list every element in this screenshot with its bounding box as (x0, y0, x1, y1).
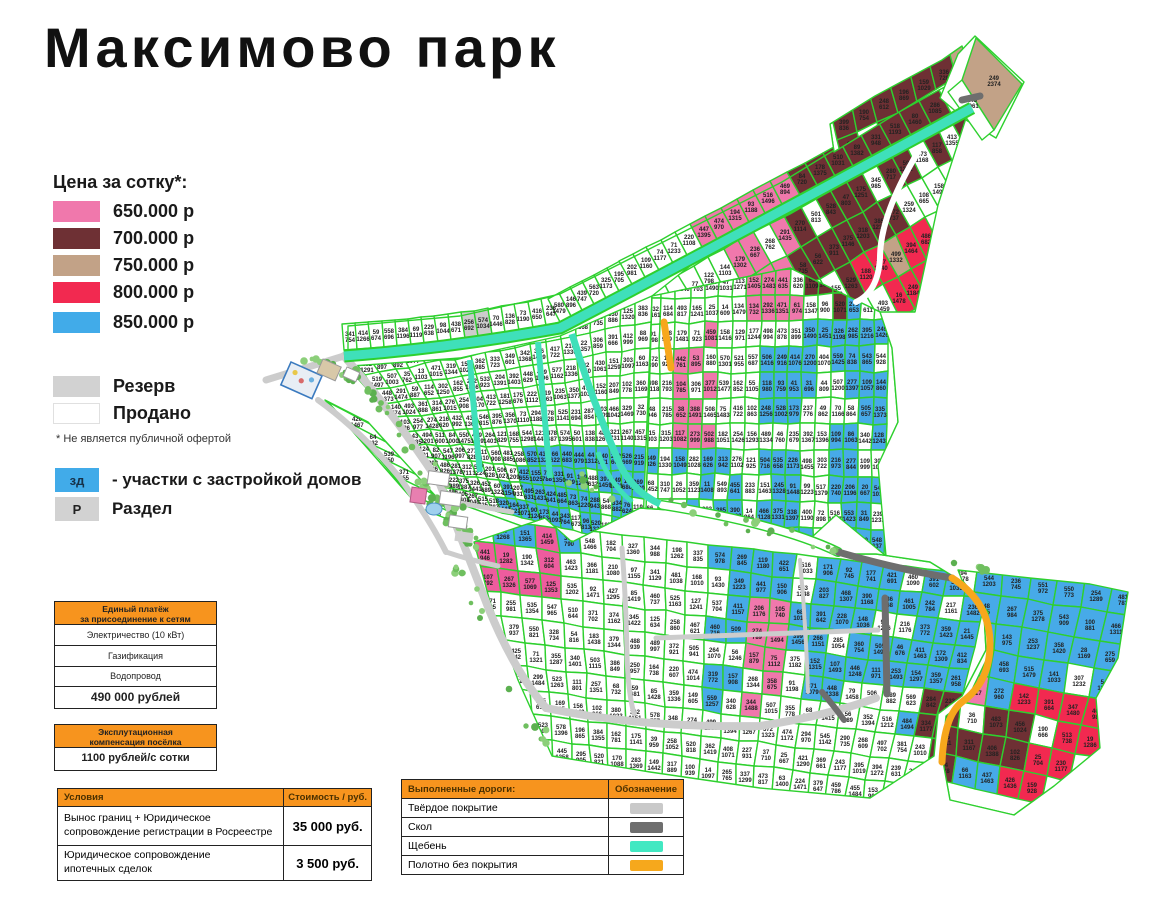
svg-text:104785: 104785 (676, 382, 687, 394)
svg-text:416722: 416722 (733, 406, 744, 418)
svg-text:379647: 379647 (813, 781, 824, 793)
svg-text:347760: 347760 (516, 697, 527, 709)
svg-text:109994: 109994 (831, 432, 842, 444)
svg-text:4351228: 4351228 (495, 694, 509, 706)
svg-text:162781: 162781 (611, 732, 622, 744)
svg-text:190754: 190754 (859, 110, 870, 122)
svg-text:441977: 441977 (756, 582, 767, 594)
svg-text:439747: 439747 (577, 291, 588, 303)
svg-text:424641: 424641 (546, 492, 557, 504)
svg-text:117858: 117858 (932, 143, 943, 155)
svg-text:216973: 216973 (831, 458, 842, 470)
svg-text:195705: 195705 (614, 272, 625, 284)
svg-text:203827: 203827 (819, 588, 830, 600)
svg-text:379937: 379937 (509, 625, 520, 637)
svg-text:473878: 473878 (777, 329, 788, 341)
svg-text:361888: 361888 (418, 402, 429, 414)
svg-text:215919: 215919 (634, 455, 645, 467)
svg-text:129971: 129971 (735, 330, 746, 342)
svg-text:485664: 485664 (557, 493, 568, 505)
svg-text:510644: 510644 (568, 608, 579, 620)
svg-text:351899: 351899 (791, 329, 802, 341)
svg-text:173979: 173979 (789, 406, 800, 418)
svg-text:574978: 574978 (715, 553, 726, 565)
svg-text:372921: 372921 (669, 644, 680, 656)
svg-text:421691: 421691 (887, 573, 898, 585)
svg-text:441635: 441635 (778, 278, 789, 290)
svg-text:239631: 239631 (891, 766, 902, 778)
svg-text:255981: 255981 (506, 601, 517, 613)
svg-text:488939: 488939 (630, 639, 641, 651)
svg-text:175953: 175953 (999, 232, 1010, 244)
svg-text:49726: 49726 (982, 199, 993, 211)
svg-text:417722: 417722 (550, 347, 561, 359)
svg-text:236745: 236745 (1011, 579, 1022, 591)
svg-text:454847: 454847 (503, 743, 514, 755)
svg-text:381754: 381754 (897, 742, 908, 754)
svg-text:100939: 100939 (685, 765, 696, 777)
svg-text:248612: 248612 (879, 99, 890, 111)
svg-text:196865: 196865 (575, 728, 586, 740)
svg-text:43627: 43627 (969, 249, 980, 261)
svg-text:105740: 105740 (775, 607, 786, 619)
svg-text:171906: 171906 (823, 565, 834, 577)
svg-text:134732: 134732 (749, 304, 760, 316)
svg-text:550773: 550773 (1064, 587, 1075, 599)
svg-text:149605: 149605 (688, 693, 699, 705)
svg-text:511600: 511600 (435, 433, 446, 445)
svg-text:216793: 216793 (662, 381, 673, 393)
svg-text:207849: 207849 (609, 383, 620, 395)
svg-text:227931: 227931 (742, 748, 753, 760)
svg-text:505941: 505941 (689, 646, 700, 658)
svg-text:233883: 233883 (745, 483, 756, 495)
svg-text:1551317: 1551317 (1012, 223, 1026, 235)
svg-text:501813: 501813 (811, 212, 822, 224)
svg-text:162855: 162855 (453, 381, 464, 393)
svg-text:144860: 144860 (876, 380, 887, 392)
svg-text:246962: 246962 (521, 745, 532, 757)
svg-text:306971: 306971 (691, 382, 702, 394)
svg-text:331948: 331948 (871, 135, 882, 147)
svg-text:124755: 124755 (904, 792, 915, 804)
svg-text:277837: 277837 (967, 208, 978, 220)
svg-text:360754: 360754 (854, 642, 865, 654)
svg-text:455641: 455641 (730, 483, 741, 495)
svg-text:373911: 373911 (829, 245, 840, 257)
svg-text:498994: 498994 (763, 329, 774, 341)
svg-text:236667: 236667 (750, 247, 761, 259)
svg-text:241707: 241707 (952, 217, 963, 229)
svg-text:475656: 475656 (1079, 766, 1090, 778)
svg-text:175676: 175676 (513, 393, 524, 405)
svg-text:220607: 220607 (669, 667, 680, 679)
svg-text:272960: 272960 (994, 689, 1005, 701)
svg-text:502988: 502988 (704, 432, 715, 444)
svg-text:546815: 546815 (479, 415, 490, 427)
svg-text:416650: 416650 (532, 309, 543, 321)
svg-text:164738: 164738 (649, 665, 660, 677)
svg-text:513738: 513738 (1062, 733, 1073, 745)
svg-text:569623: 569623 (906, 695, 917, 707)
svg-text:254977: 254977 (413, 419, 424, 431)
svg-text:169626: 169626 (703, 457, 714, 469)
svg-text:268762: 268762 (765, 239, 776, 251)
svg-text:275659: 275659 (1105, 652, 1116, 664)
svg-text:352794: 352794 (1050, 789, 1061, 801)
svg-text:157908: 157908 (728, 674, 739, 686)
svg-text:313942: 313942 (718, 457, 729, 469)
svg-text:118980: 118980 (762, 381, 773, 393)
svg-text:432992: 432992 (452, 416, 463, 428)
svg-text:442761: 442761 (676, 357, 687, 369)
svg-text:280611: 280611 (965, 167, 976, 179)
svg-text:312604: 312604 (544, 558, 555, 570)
svg-text:489997: 489997 (650, 641, 661, 653)
svg-text:215785: 215785 (662, 407, 673, 419)
svg-text:136828: 136828 (505, 314, 516, 326)
svg-text:109999: 109999 (860, 459, 871, 471)
svg-text:146896: 146896 (566, 297, 577, 309)
svg-text:143975: 143975 (1002, 635, 1013, 647)
svg-text:549893: 549893 (717, 482, 728, 494)
svg-text:196869: 196869 (899, 90, 910, 102)
svg-text:358675: 358675 (767, 679, 778, 691)
svg-text:557687: 557687 (748, 355, 759, 367)
svg-text:377693: 377693 (477, 526, 488, 538)
svg-text:256692: 256692 (464, 320, 475, 332)
svg-text:5731332: 5731332 (489, 647, 503, 659)
svg-text:312711: 312711 (462, 465, 473, 477)
svg-text:383836: 383836 (638, 306, 649, 318)
svg-text:157879: 157879 (749, 653, 760, 665)
svg-text:177741: 177741 (866, 571, 877, 583)
svg-text:102863: 102863 (747, 406, 758, 418)
svg-text:422651: 422651 (779, 561, 790, 573)
svg-text:438671: 438671 (451, 322, 462, 334)
svg-text:185748: 185748 (954, 258, 965, 270)
svg-text:413722: 413722 (486, 395, 497, 407)
svg-text:474970: 474970 (714, 219, 725, 231)
svg-text:459786: 459786 (831, 783, 842, 795)
svg-text:2221112: 2221112 (526, 392, 539, 404)
svg-text:473817: 473817 (758, 774, 769, 786)
svg-text:444979: 444979 (574, 453, 585, 465)
svg-text:349601: 349601 (505, 354, 516, 366)
svg-text:216620: 216620 (439, 417, 450, 429)
svg-text:102778: 102778 (622, 382, 633, 394)
svg-text:528843: 528843 (826, 204, 837, 216)
svg-text:328734: 328734 (549, 630, 560, 642)
svg-text:147725: 147725 (500, 719, 511, 731)
svg-text:249916: 249916 (777, 355, 788, 367)
svg-text:448629: 448629 (523, 372, 534, 384)
svg-text:467621: 467621 (690, 623, 701, 635)
svg-text:235679: 235679 (789, 432, 800, 444)
svg-text:543909: 543909 (1059, 615, 1070, 627)
svg-text:190666: 190666 (1038, 727, 1049, 739)
svg-text:540606: 540606 (1072, 794, 1083, 806)
svg-text:391666: 391666 (608, 335, 619, 347)
svg-text:231694: 231694 (571, 410, 582, 422)
svg-text:273999: 273999 (690, 432, 701, 444)
svg-text:535658: 535658 (773, 458, 784, 470)
svg-text:100881: 100881 (1085, 620, 1096, 632)
svg-text:458693: 458693 (999, 662, 1010, 674)
svg-text:341754: 341754 (345, 332, 356, 344)
svg-text:340628: 340628 (726, 699, 737, 711)
svg-text:254908: 254908 (459, 398, 470, 410)
svg-text:237776: 237776 (803, 406, 814, 418)
svg-text:333723: 333723 (490, 357, 501, 369)
svg-text:558696: 558696 (384, 329, 395, 341)
svg-text:287854: 287854 (584, 409, 595, 421)
svg-text:469894: 469894 (780, 184, 791, 196)
svg-text:4191058: 4191058 (492, 671, 506, 683)
svg-text:102826: 102826 (1010, 750, 1021, 762)
svg-text:314861: 314861 (432, 401, 443, 413)
svg-text:521955: 521955 (734, 356, 745, 368)
svg-text:2701114: 2701114 (794, 221, 807, 233)
svg-text:159928: 159928 (1027, 783, 1038, 795)
svg-text:547965: 547965 (547, 605, 558, 617)
svg-text:111801: 111801 (572, 680, 583, 692)
svg-text:336620: 336620 (793, 278, 804, 290)
svg-text:551972: 551972 (1038, 583, 1049, 595)
svg-text:182704: 182704 (606, 541, 617, 553)
svg-text:460737: 460737 (650, 594, 661, 606)
svg-text:5031115: 5031115 (589, 658, 602, 670)
svg-text:343764: 343764 (560, 514, 571, 526)
svg-text:265765: 265765 (722, 770, 733, 782)
svg-text:550821: 550821 (529, 627, 540, 639)
svg-text:543865: 543865 (862, 354, 873, 366)
svg-text:891178: 891178 (937, 267, 951, 279)
svg-text:2861011: 2861011 (947, 176, 961, 188)
svg-text:121829: 121829 (497, 432, 508, 444)
svg-text:345985: 345985 (871, 178, 882, 190)
svg-text:19736: 19736 (922, 794, 933, 806)
svg-text:505657: 505657 (861, 406, 872, 418)
svg-text:563720: 563720 (589, 285, 600, 297)
svg-text:250957: 250957 (630, 663, 641, 675)
svg-text:395876: 395876 (492, 414, 503, 426)
svg-text:412834: 412834 (957, 653, 968, 665)
svg-text:229638: 229638 (424, 325, 435, 337)
svg-text:150906: 150906 (777, 584, 788, 596)
svg-text:162852: 162852 (733, 381, 744, 393)
svg-text:560908: 560908 (491, 451, 502, 463)
svg-text:121925: 121925 (746, 458, 757, 470)
svg-text:295905: 295905 (576, 752, 587, 764)
svg-text:493817: 493817 (677, 306, 688, 318)
svg-text:362985: 362985 (475, 359, 486, 371)
svg-text:544928: 544928 (876, 354, 887, 366)
svg-text:306859: 306859 (593, 338, 604, 350)
svg-text:344988: 344988 (650, 546, 661, 558)
svg-text:168755: 168755 (509, 432, 520, 444)
svg-text:412999: 412999 (623, 334, 634, 346)
svg-text:262985: 262985 (848, 328, 859, 340)
svg-text:671260: 671260 (978, 158, 992, 170)
svg-text:511897: 511897 (377, 359, 388, 371)
svg-text:138838: 138838 (585, 431, 596, 443)
svg-text:280717: 280717 (886, 169, 897, 181)
svg-text:125634: 125634 (650, 617, 661, 629)
svg-text:281250: 281250 (842, 537, 856, 549)
svg-text:201828: 201828 (485, 467, 496, 479)
svg-text:269845: 269845 (737, 555, 748, 567)
svg-text:242784: 242784 (925, 601, 936, 613)
svg-text:220740: 220740 (831, 485, 842, 497)
svg-text:290735: 290735 (840, 736, 851, 748)
svg-text:337835: 337835 (693, 551, 704, 563)
svg-text:268609: 268609 (858, 738, 869, 750)
svg-text:497702: 497702 (877, 741, 888, 753)
svg-text:114652: 114652 (424, 385, 435, 397)
svg-text:277844: 277844 (846, 459, 857, 471)
svg-text:294970: 294970 (801, 732, 812, 744)
svg-text:570852: 570852 (527, 452, 538, 464)
svg-text:386849: 386849 (610, 661, 621, 673)
svg-text:440683: 440683 (562, 452, 573, 464)
svg-text:124709: 124709 (985, 241, 996, 253)
svg-text:537704: 537704 (712, 601, 723, 613)
svg-text:310747: 310747 (660, 482, 671, 494)
svg-text:371702: 371702 (588, 611, 599, 623)
svg-text:533923: 533923 (480, 377, 491, 389)
svg-text:399836: 399836 (839, 120, 850, 132)
svg-text:267984: 267984 (1007, 607, 1018, 619)
svg-text:207931: 207931 (513, 486, 524, 498)
svg-text:261958: 261958 (951, 676, 962, 688)
svg-text:2271000: 2271000 (921, 276, 935, 288)
svg-text:206997: 206997 (455, 448, 466, 460)
svg-text:2781326: 2781326 (926, 771, 940, 783)
svg-text:373772: 373772 (920, 625, 931, 637)
svg-text:202981: 202981 (627, 265, 638, 277)
svg-text:288943: 288943 (590, 498, 601, 510)
svg-text:284842: 284842 (926, 697, 937, 709)
svg-text:412655: 412655 (519, 470, 530, 482)
svg-text:303722: 303722 (817, 458, 828, 470)
svg-text:473779: 473779 (936, 226, 947, 238)
svg-text:3531367: 3531367 (995, 190, 1009, 202)
svg-text:108665: 108665 (919, 193, 930, 205)
svg-text:258860: 258860 (670, 620, 681, 632)
svg-text:520818: 520818 (686, 742, 697, 754)
svg-text:504716: 504716 (760, 458, 771, 470)
svg-text:369661: 369661 (816, 758, 827, 770)
svg-text:317889: 317889 (667, 762, 678, 774)
svg-text:391664: 391664 (1044, 700, 1055, 712)
svg-text:114684: 114684 (663, 306, 674, 318)
svg-text:319772: 319772 (708, 672, 719, 684)
svg-text:160880: 160880 (706, 355, 717, 367)
svg-text:391642: 391642 (816, 612, 827, 624)
svg-text:111971: 111971 (871, 668, 882, 680)
svg-text:351424: 351424 (884, 790, 898, 802)
